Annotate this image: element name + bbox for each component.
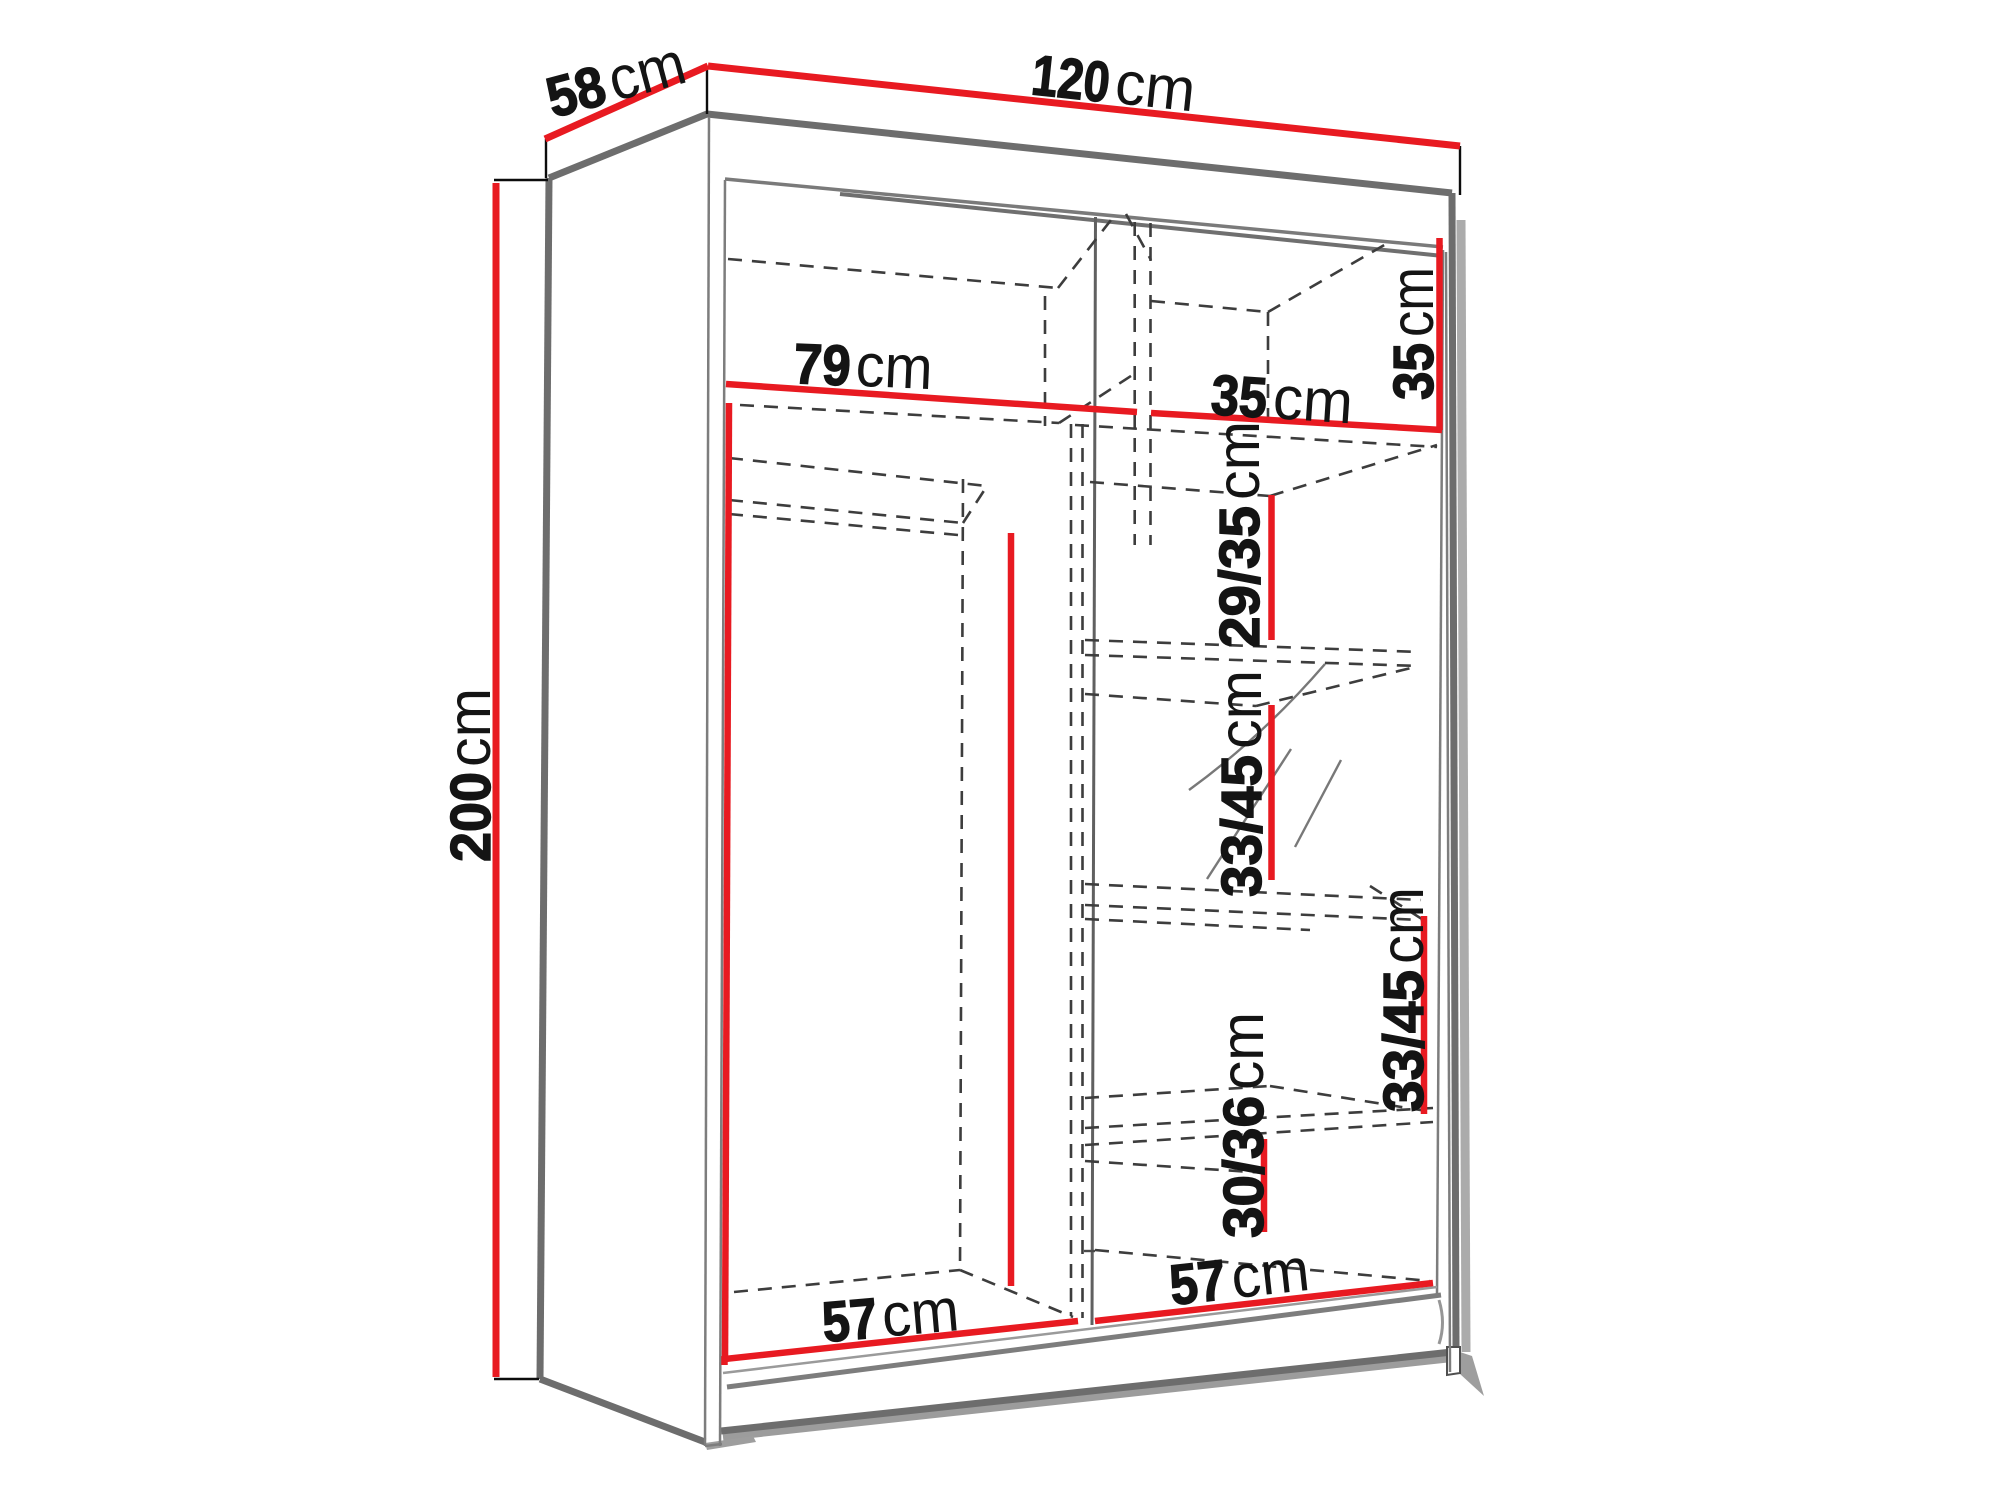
svg-text:120: 120 [1029, 43, 1113, 115]
svg-text:cm: cm [1228, 1235, 1313, 1311]
svg-text:200: 200 [439, 772, 503, 862]
svg-text:79: 79 [792, 332, 852, 398]
svg-text:57: 57 [1166, 1248, 1229, 1318]
svg-text:35: 35 [1209, 363, 1269, 431]
svg-text:cm: cm [1112, 48, 1199, 124]
svg-text:cm: cm [1204, 421, 1272, 500]
svg-text:cm: cm [1206, 670, 1274, 749]
svg-text:29/35: 29/35 [1208, 506, 1272, 648]
svg-text:cm: cm [1378, 267, 1446, 337]
svg-text:33/45: 33/45 [1210, 755, 1274, 897]
svg-text:cm: cm [879, 1275, 962, 1349]
svg-text:cm: cm [1208, 1012, 1276, 1090]
svg-text:cm: cm [1368, 887, 1436, 964]
svg-text:cm: cm [1271, 363, 1355, 436]
svg-text:35: 35 [1382, 343, 1446, 400]
svg-text:cm: cm [435, 688, 503, 767]
svg-text:cm: cm [854, 331, 934, 402]
svg-text:30/36: 30/36 [1212, 1096, 1276, 1238]
svg-text:57: 57 [820, 1286, 880, 1355]
svg-text:33/45: 33/45 [1372, 970, 1436, 1112]
